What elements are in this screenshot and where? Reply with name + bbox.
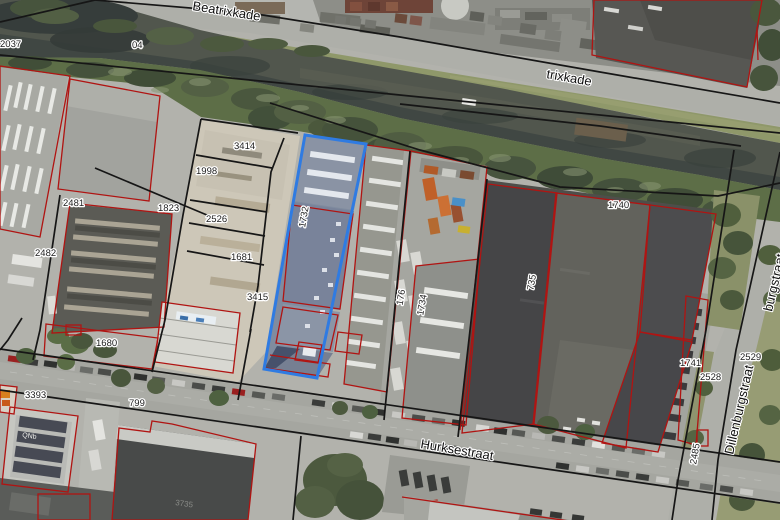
svg-text:1740: 1740 — [608, 200, 629, 211]
svg-text:04: 04 — [132, 40, 143, 51]
svg-text:2482: 2482 — [35, 248, 56, 259]
svg-text:2528: 2528 — [700, 372, 721, 383]
svg-text:2529: 2529 — [740, 352, 761, 363]
svg-text:3415: 3415 — [247, 292, 268, 303]
svg-text:3393: 3393 — [25, 390, 46, 401]
svg-text:2481: 2481 — [63, 198, 84, 209]
svg-text:2526: 2526 — [206, 214, 227, 225]
svg-text:1823: 1823 — [158, 203, 179, 214]
svg-text:1998: 1998 — [196, 166, 217, 177]
svg-text:1681: 1681 — [231, 252, 252, 263]
svg-text:799: 799 — [129, 398, 145, 409]
svg-text:3414: 3414 — [234, 141, 255, 152]
svg-text:1680: 1680 — [96, 338, 117, 349]
svg-text:2037: 2037 — [0, 39, 21, 50]
svg-text:1741: 1741 — [680, 358, 701, 369]
